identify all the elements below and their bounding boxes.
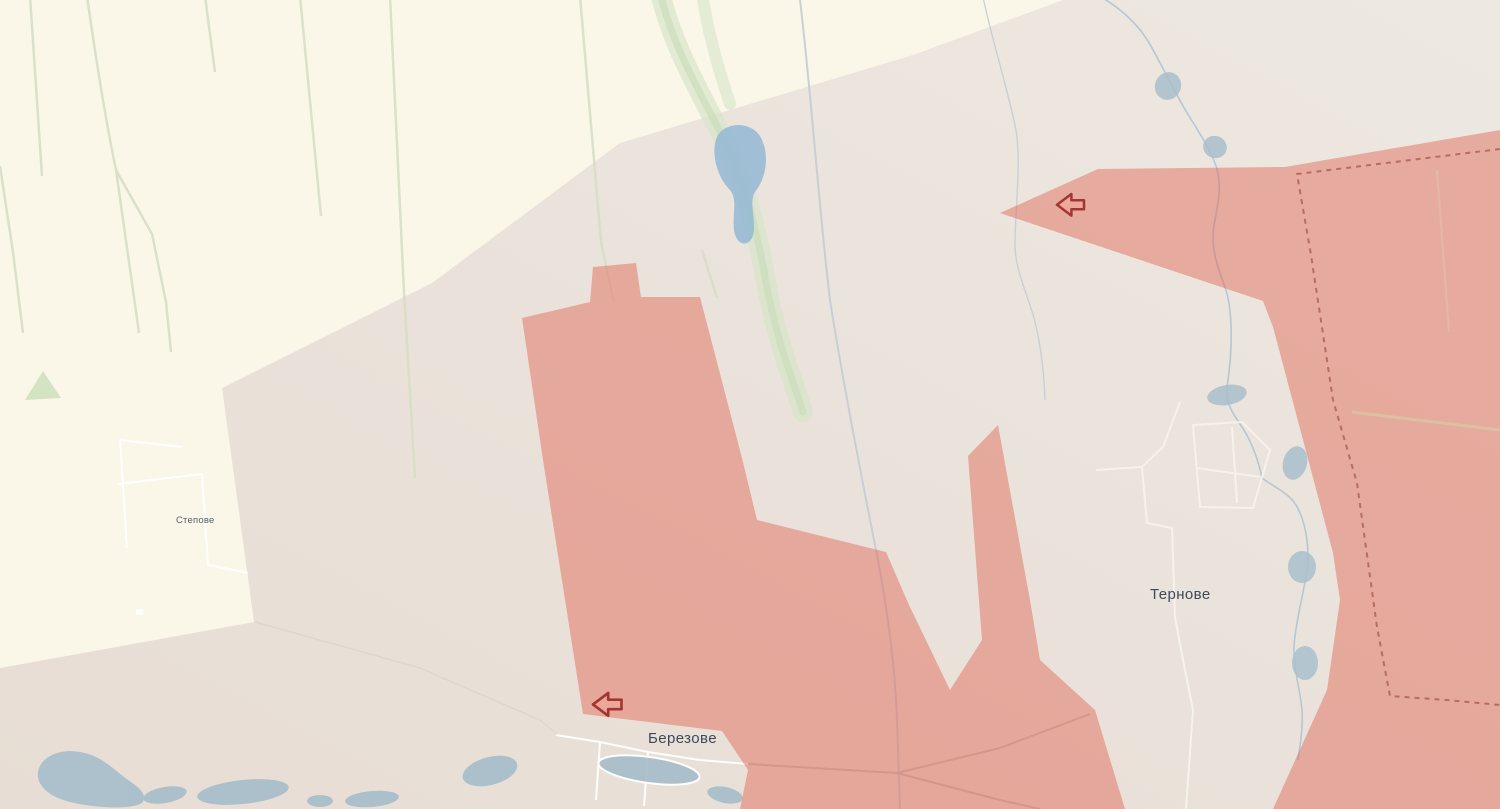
map-canvas[interactable]: Степове Тернове Березове: [0, 0, 1500, 809]
map-image[interactable]: [0, 0, 1500, 809]
building-dot: [136, 609, 143, 615]
